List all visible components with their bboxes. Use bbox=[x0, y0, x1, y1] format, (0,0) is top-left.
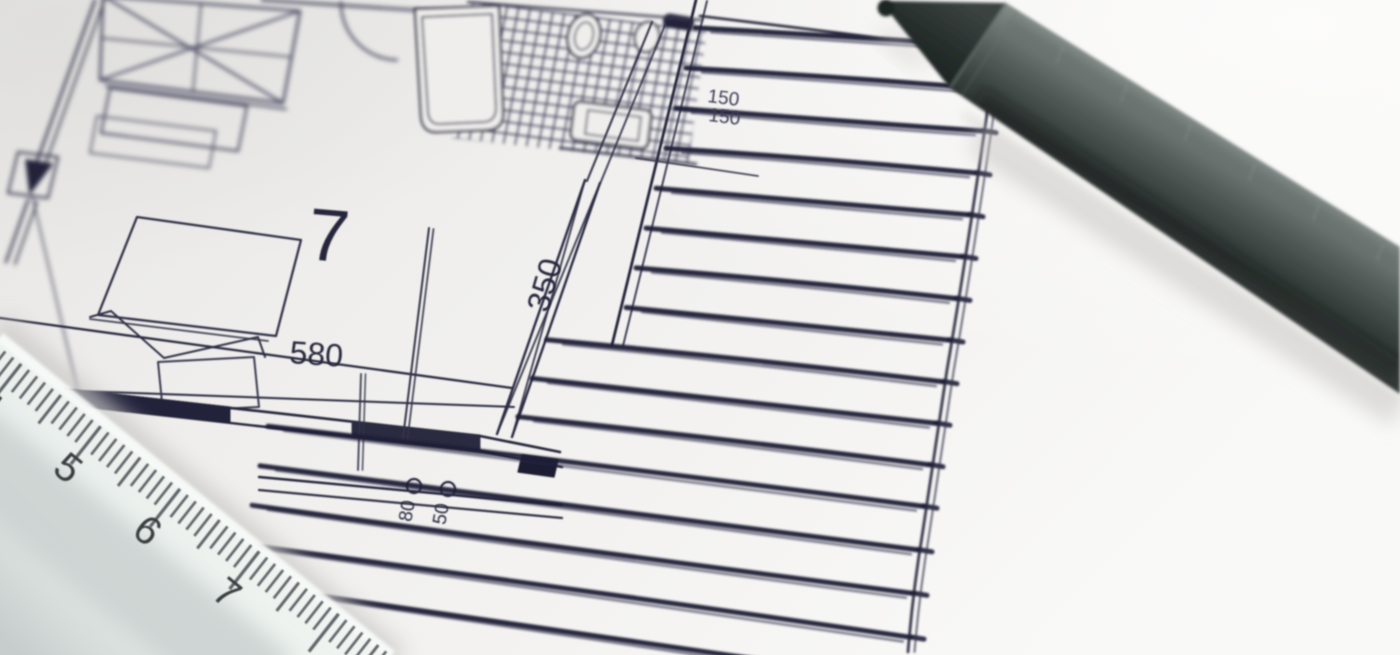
svg-text:7: 7 bbox=[305, 192, 353, 278]
svg-text:80: 80 bbox=[395, 499, 419, 523]
svg-text:150: 150 bbox=[707, 105, 741, 130]
svg-text:50: 50 bbox=[429, 502, 453, 526]
svg-text:580: 580 bbox=[289, 334, 345, 374]
